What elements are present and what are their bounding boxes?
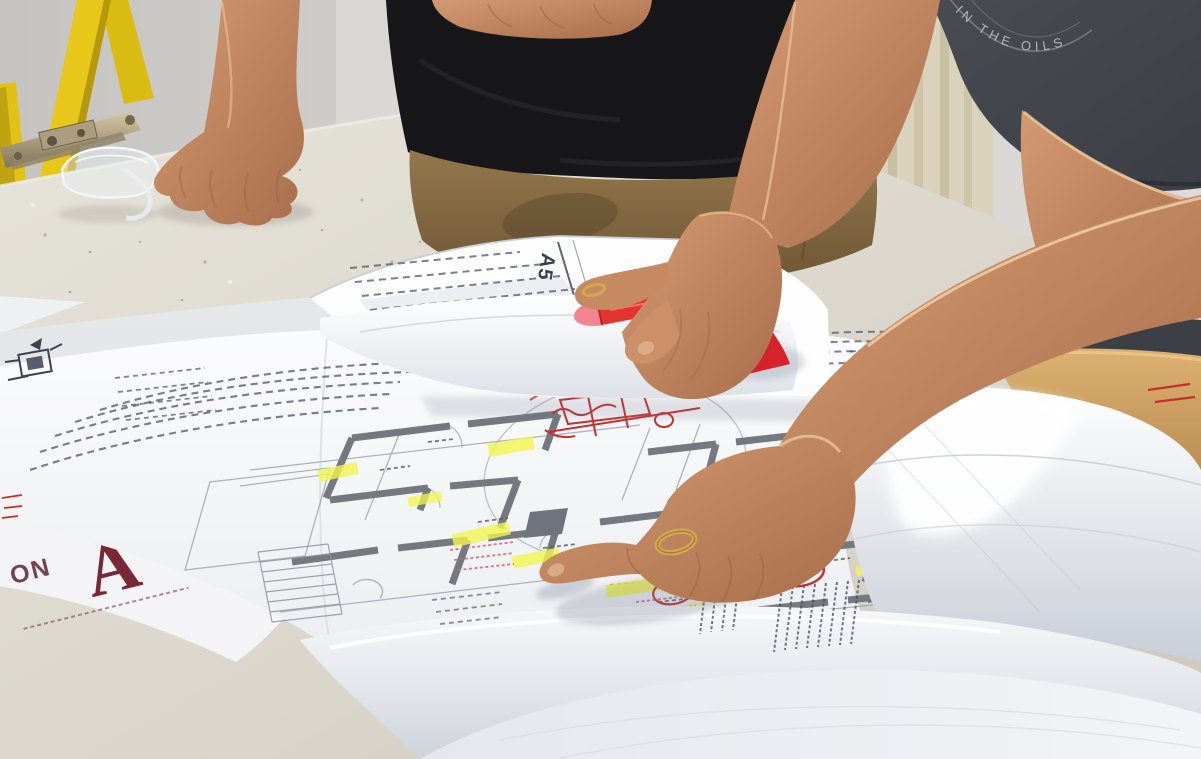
brace-bolt (125, 115, 135, 125)
plan-wall-junction (524, 508, 568, 538)
brace-bolt (14, 152, 22, 160)
safety-glasses (58, 148, 163, 223)
brace-bolt (47, 136, 57, 146)
photo-blueprint-review: IN THE OILS ON A (0, 0, 1201, 759)
brace-bolt (77, 129, 85, 137)
paint-chip (228, 280, 232, 284)
photo-canvas: IN THE OILS ON A (0, 0, 1201, 759)
paint-chip (31, 203, 35, 207)
